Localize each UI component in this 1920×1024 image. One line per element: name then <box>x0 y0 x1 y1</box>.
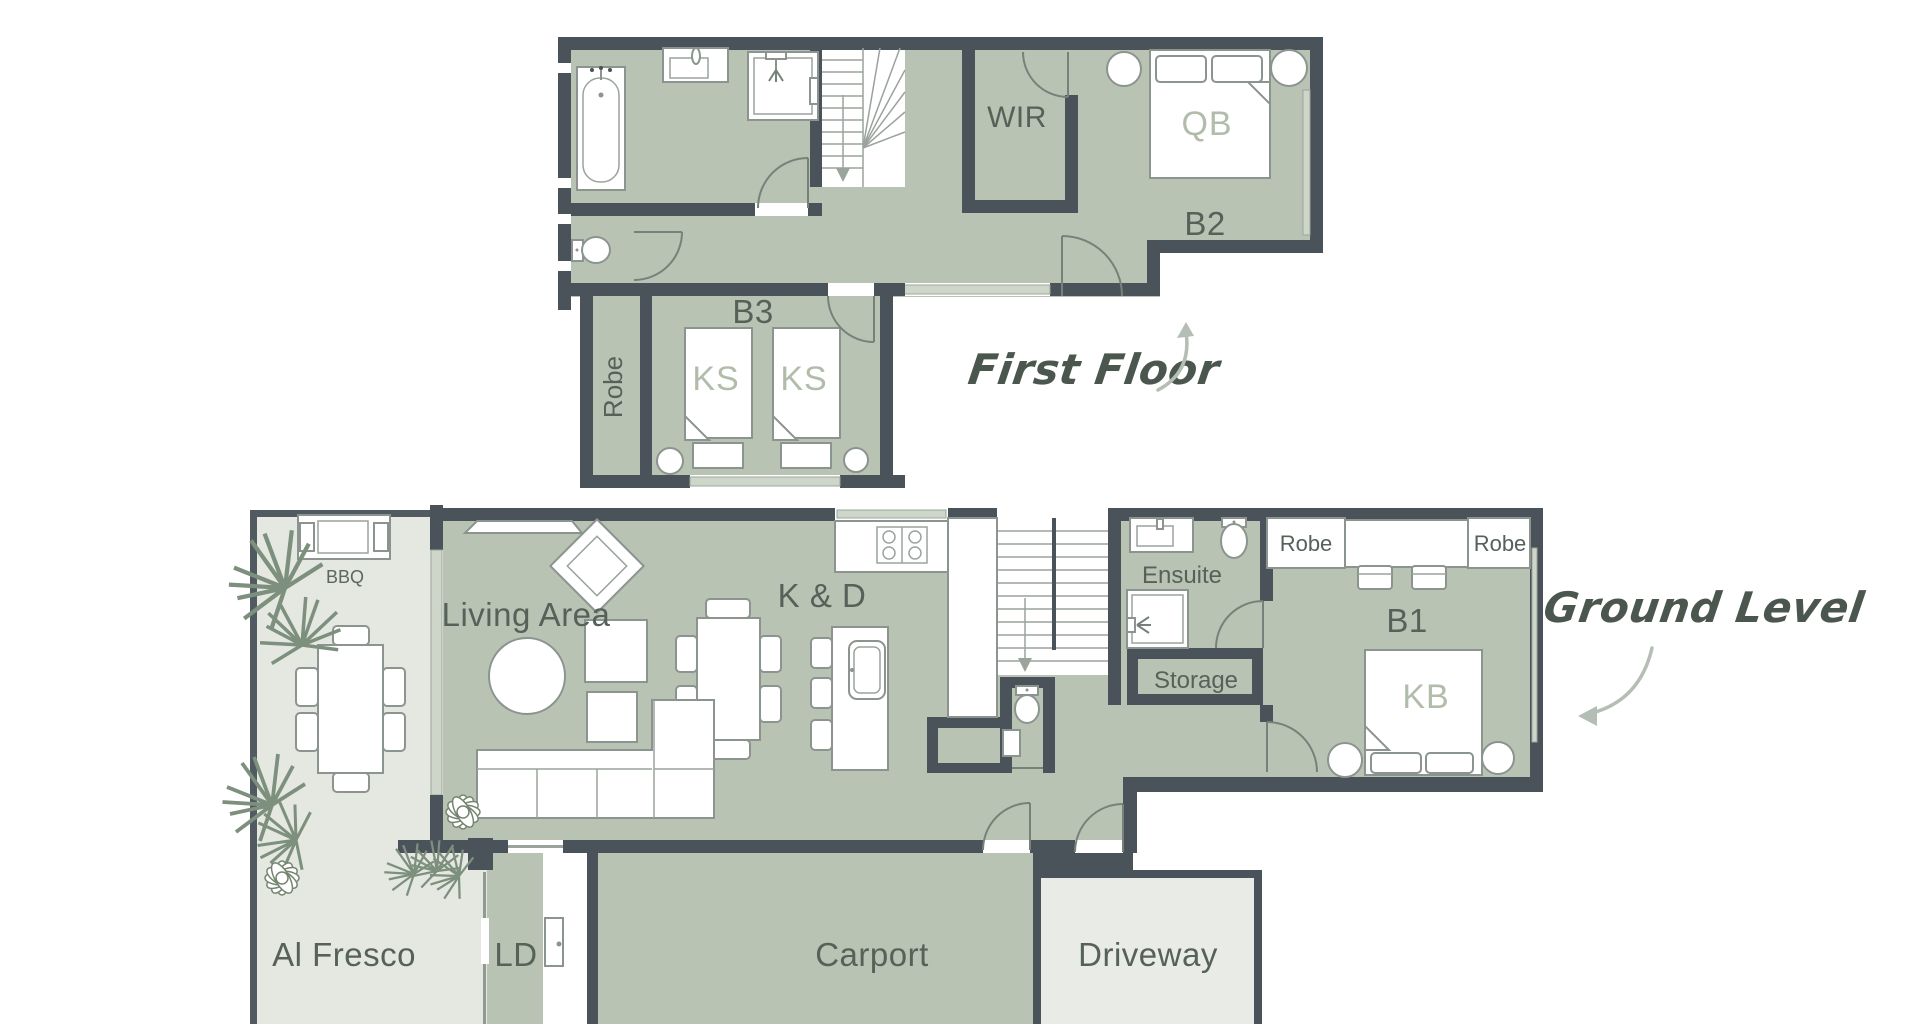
label-robe-left: Robe <box>1280 531 1333 556</box>
exterior-notch <box>1160 253 1323 297</box>
room-label-ld: LD <box>494 936 537 973</box>
shower-icon <box>748 52 818 120</box>
bedside-table-icon <box>1328 743 1362 777</box>
kitchen-island-icon <box>832 627 888 770</box>
ground-floor-plan: BBQ Living Area K & D Ensuite Storage Ro… <box>223 505 1868 1024</box>
room-label-driveway: Driveway <box>1078 936 1218 973</box>
bedside-table-icon <box>657 448 683 474</box>
label-bbq: BBQ <box>326 567 364 587</box>
room-label-b3: B3 <box>732 293 773 330</box>
ground-level-arrowhead-icon <box>1578 706 1597 726</box>
floor-plan-drawing: WIR B2 B3 QB KS KS Robe First Floor <box>0 0 1920 1024</box>
bedside-table-icon <box>844 448 868 472</box>
window-icon <box>1303 90 1310 235</box>
toilet-icon <box>1015 686 1039 723</box>
room-label-robe: Robe <box>598 356 628 418</box>
room-label-b1: B1 <box>1386 602 1427 639</box>
floor-plan-page: WIR B2 B3 QB KS KS Robe First Floor <box>0 0 1920 1024</box>
first-floor-plan: WIR B2 B3 QB KS KS Robe First Floor <box>558 37 1323 488</box>
toilet-icon <box>1221 518 1247 558</box>
bed-label-qb: QB <box>1181 105 1232 143</box>
first-floor-arrowhead-icon <box>1177 322 1194 338</box>
kitchen-bench-icon <box>835 521 948 572</box>
stool-icon <box>811 638 832 668</box>
chair-icon <box>1358 566 1392 589</box>
toilet-icon <box>572 237 610 263</box>
room-label-carport: Carport <box>815 936 929 973</box>
window-icon <box>837 510 946 518</box>
sliding-door-icon <box>431 550 442 795</box>
vanity-sink-icon <box>1130 518 1193 552</box>
bed-label-kb: KB <box>1402 678 1449 716</box>
single-bed-icon <box>773 328 840 468</box>
room-label-living: Living Area <box>442 596 611 633</box>
bedside-table-icon <box>1482 742 1514 774</box>
highlight-window-icon <box>465 521 582 533</box>
bbq-icon <box>298 515 390 559</box>
basin-icon <box>1003 730 1020 756</box>
bathtub-icon <box>577 66 625 190</box>
room-label-b2: B2 <box>1184 205 1225 242</box>
bed-label-ks: KS <box>692 360 739 398</box>
ground-level-annotation: Ground Level <box>1541 583 1868 632</box>
room-label-kd: K & D <box>778 577 867 614</box>
window-icon <box>690 477 840 486</box>
room-label-ensuite: Ensuite <box>1142 562 1222 589</box>
round-rug-icon <box>489 638 565 714</box>
room-label-storage: Storage <box>1154 667 1238 694</box>
ground-level-title: Ground Level <box>1541 583 1868 632</box>
ottoman-icon <box>587 692 637 742</box>
entry-door-icon <box>545 918 563 966</box>
stairs-icon <box>997 518 1108 675</box>
stool-icon <box>811 720 832 750</box>
single-bed-icon <box>685 328 752 468</box>
bed-label-ks: KS <box>780 360 827 398</box>
shower-icon <box>1127 590 1188 648</box>
room-label-wir: WIR <box>987 101 1047 134</box>
bedside-table-icon <box>1107 52 1141 86</box>
room-label-al-fresco: Al Fresco <box>272 936 416 973</box>
bedside-table-icon <box>1271 50 1307 86</box>
stool-icon <box>811 678 832 708</box>
label-robe-right: Robe <box>1474 531 1527 556</box>
pantry-counter-icon <box>948 518 997 717</box>
dresser-icon <box>1345 520 1468 567</box>
window-icon <box>900 285 1050 294</box>
chair-icon <box>1412 566 1446 589</box>
window-icon <box>1532 548 1537 742</box>
ground-level-arrow-icon <box>1592 648 1652 713</box>
vanity-sink-icon <box>663 48 728 82</box>
